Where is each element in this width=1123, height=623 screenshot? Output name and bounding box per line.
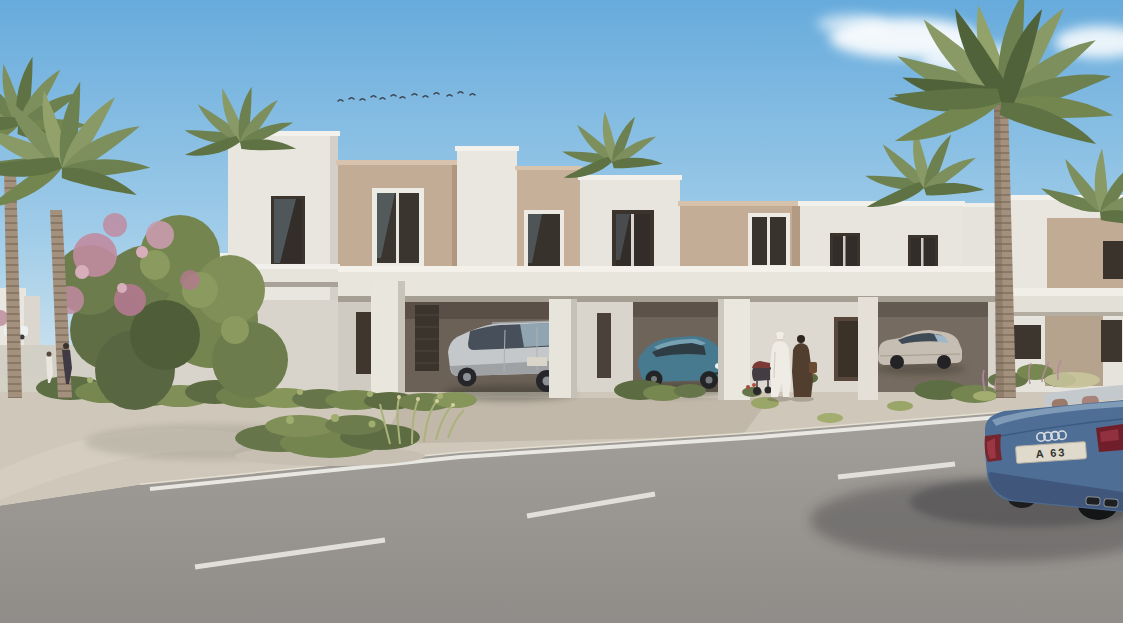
window-upper [748, 213, 790, 269]
canopy-face [338, 272, 1003, 296]
canopy-shadow [338, 296, 1003, 302]
window-upper [1103, 241, 1123, 279]
plate-text: A 63 [1035, 446, 1067, 460]
entry-door [838, 321, 860, 377]
island-bush [265, 415, 335, 437]
person-shadow [767, 396, 791, 402]
window-upper [271, 196, 305, 266]
bush-highlight [87, 377, 93, 383]
bush-highlight [286, 416, 294, 424]
window-upper [372, 188, 424, 268]
parapet-cap [515, 166, 582, 170]
ghutra [776, 332, 784, 340]
distant-building [24, 296, 40, 346]
pedestrian-head [63, 343, 69, 349]
bush-highlight [297, 389, 303, 395]
bush-highlight [437, 393, 443, 399]
rendering-canvas: A 63 [0, 0, 1123, 623]
exhaust-tip [1104, 499, 1119, 508]
seed-head [397, 395, 401, 399]
parapet-cap [455, 146, 519, 151]
seed-head [416, 397, 420, 401]
pillar-shade [571, 299, 577, 398]
right-header [1003, 296, 1123, 314]
carport-soffit-shadow [876, 301, 988, 317]
window-ground [1101, 320, 1122, 362]
seed-head [435, 399, 439, 403]
carport-soffit-shadow [633, 301, 718, 317]
parapet-cap [578, 175, 682, 180]
stroller-wheel [765, 387, 772, 394]
suv-hub [463, 373, 471, 381]
bush [674, 384, 706, 398]
grass-tuft [817, 413, 843, 423]
pedestrian-head [47, 352, 52, 357]
suv-plate [527, 357, 547, 366]
pillar-shade [398, 281, 405, 403]
parapet-cap [336, 160, 462, 165]
window-ground [1013, 325, 1041, 359]
parapet-cap [678, 201, 802, 206]
bush-highlight [331, 414, 339, 422]
canopy-cap [338, 266, 1003, 272]
cloud [817, 14, 887, 34]
sedan-wheel [937, 355, 951, 369]
canopy-cap [245, 264, 340, 269]
carport-canopy [245, 264, 1003, 302]
header-shadow [1003, 312, 1123, 316]
porsche-hub [651, 376, 657, 382]
pillar [858, 297, 878, 400]
seed-head [451, 403, 455, 407]
window-upper [612, 210, 654, 270]
dry-grass [1044, 372, 1100, 388]
scene-svg: A 63 [0, 0, 1123, 623]
window-upper [524, 210, 564, 272]
pillar-shade [718, 299, 724, 400]
stroller-wheel [753, 387, 761, 395]
bush-highlight [367, 391, 373, 397]
exhaust-tip [1086, 497, 1101, 506]
person-shadow [790, 396, 814, 402]
right-header-cap [1003, 288, 1123, 296]
louver-screen [415, 305, 439, 371]
bush-highlight [369, 421, 376, 428]
side-door [597, 313, 611, 378]
handbag [809, 362, 817, 373]
porsche-hub [706, 377, 713, 384]
grass-tuft [973, 391, 997, 401]
grass-tuft [887, 401, 913, 411]
sedan-wheel [890, 355, 904, 369]
